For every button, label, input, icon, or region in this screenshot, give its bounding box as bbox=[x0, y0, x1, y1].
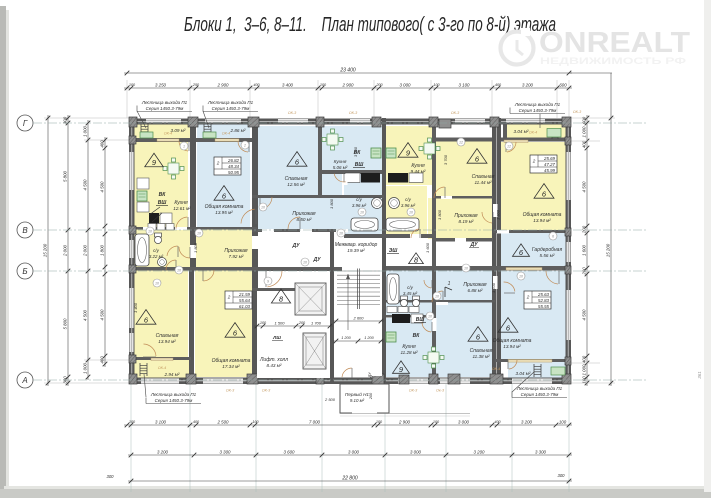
svg-text:3 100: 3 100 bbox=[459, 82, 471, 87]
svg-text:ОК-3: ОК-3 bbox=[349, 111, 358, 115]
svg-text:ДУ: ДУ bbox=[470, 242, 479, 248]
svg-text:ОК-4: ОК-4 bbox=[529, 131, 538, 135]
svg-text:6: 6 bbox=[552, 235, 554, 239]
svg-text:361: 361 bbox=[697, 371, 702, 379]
svg-text:100: 100 bbox=[582, 376, 587, 384]
svg-text:250: 250 bbox=[192, 83, 200, 87]
svg-text:19.39 м²: 19.39 м² bbox=[347, 248, 365, 253]
svg-text:Серия 1450.3-79м: Серия 1450.3-79м bbox=[155, 398, 193, 403]
svg-text:3 000: 3 000 bbox=[458, 419, 470, 424]
svg-text:100: 100 bbox=[252, 420, 259, 424]
svg-text:ВШ: ВШ bbox=[158, 200, 167, 206]
svg-text:400: 400 bbox=[582, 355, 587, 363]
svg-text:Лестница выхода П1: Лестница выхода П1 bbox=[207, 100, 254, 105]
svg-text:300: 300 bbox=[558, 473, 566, 478]
svg-text:8.19 м²: 8.19 м² bbox=[459, 219, 474, 224]
svg-text:ДУ: ДУ bbox=[313, 257, 322, 263]
svg-text:В: В bbox=[22, 226, 28, 235]
svg-text:50.95: 50.95 bbox=[228, 170, 240, 175]
svg-text:6.88 м²: 6.88 м² bbox=[468, 288, 483, 293]
svg-text:10: 10 bbox=[261, 206, 265, 210]
svg-text:2 000: 2 000 bbox=[63, 244, 68, 257]
svg-text:1 000: 1 000 bbox=[582, 364, 587, 376]
svg-text:3 700: 3 700 bbox=[443, 154, 448, 165]
svg-text:3 250: 3 250 bbox=[155, 82, 167, 87]
svg-text:2 500: 2 500 bbox=[324, 397, 336, 402]
svg-text:Лестница выхода П1: Лестница выхода П1 bbox=[516, 386, 563, 391]
svg-text:3 200: 3 200 bbox=[521, 419, 533, 424]
svg-text:Лестница выхода П1: Лестница выхода П1 bbox=[141, 100, 188, 105]
svg-text:Б: Б bbox=[22, 267, 27, 276]
svg-text:с/у: с/у bbox=[407, 285, 414, 290]
svg-text:ВШ: ВШ bbox=[416, 317, 425, 323]
svg-text:400: 400 bbox=[494, 420, 501, 424]
svg-text:10: 10 bbox=[464, 267, 468, 271]
svg-text:400: 400 bbox=[100, 140, 105, 148]
svg-text:1 600: 1 600 bbox=[582, 244, 587, 256]
svg-text:1 200: 1 200 bbox=[364, 336, 374, 340]
svg-text:100: 100 bbox=[129, 83, 136, 87]
svg-text:3 000: 3 000 bbox=[400, 82, 412, 87]
svg-text:ОК-4: ОК-4 bbox=[492, 367, 501, 371]
svg-text:2 900: 2 900 bbox=[342, 82, 355, 87]
svg-text:7 000: 7 000 bbox=[309, 419, 321, 424]
svg-text:12.56 м²: 12.56 м² bbox=[287, 182, 305, 187]
svg-text:ЛШ: ЛШ bbox=[272, 335, 281, 340]
svg-text:Ок-3: Ок-3 bbox=[436, 389, 445, 393]
svg-text:1: 1 bbox=[448, 281, 451, 287]
svg-text:400: 400 bbox=[193, 420, 200, 424]
svg-text:Лестница выхода П1: Лестница выхода П1 bbox=[514, 102, 561, 107]
svg-text:52.83: 52.83 bbox=[538, 298, 550, 303]
svg-text:300: 300 bbox=[107, 474, 115, 479]
svg-text:100: 100 bbox=[559, 419, 567, 424]
svg-text:4 500: 4 500 bbox=[582, 309, 587, 321]
svg-text:с/у: с/у bbox=[356, 197, 363, 202]
svg-text:ОК-3: ОК-3 bbox=[226, 389, 235, 393]
svg-text:3.22 м²: 3.22 м² bbox=[149, 254, 164, 259]
svg-text:3 300: 3 300 bbox=[535, 449, 547, 454]
svg-text:1 600: 1 600 bbox=[425, 242, 430, 253]
svg-text:1 400: 1 400 bbox=[133, 302, 138, 313]
svg-text:9.10 м²: 9.10 м² bbox=[350, 398, 365, 403]
svg-text:23 400: 23 400 bbox=[339, 67, 356, 73]
svg-text:10: 10 bbox=[409, 211, 413, 215]
svg-text:25.63: 25.63 bbox=[537, 292, 550, 297]
svg-text:5 800: 5 800 bbox=[63, 318, 68, 330]
svg-text:ОК-3: ОК-3 bbox=[573, 110, 582, 114]
svg-text:13.94 м²: 13.94 м² bbox=[533, 218, 551, 223]
svg-text:13.94 м²: 13.94 м² bbox=[158, 339, 176, 344]
svg-text:3.45 м²: 3.45 м² bbox=[403, 291, 418, 296]
svg-text:ВК: ВК bbox=[159, 192, 167, 198]
svg-text:2: 2 bbox=[532, 159, 536, 164]
svg-text:10: 10 bbox=[360, 211, 364, 215]
svg-text:с/у: с/у bbox=[153, 248, 160, 253]
svg-text:2: 2 bbox=[216, 161, 220, 166]
svg-text:400: 400 bbox=[100, 356, 105, 364]
svg-text:3 400: 3 400 bbox=[282, 82, 294, 87]
svg-text:21.59: 21.59 bbox=[238, 292, 251, 297]
svg-text:Серия 1450.3-79м: Серия 1450.3-79м bbox=[146, 106, 184, 111]
svg-text:8.50 м²: 8.50 м² bbox=[297, 217, 312, 222]
svg-text:3 100: 3 100 bbox=[155, 419, 167, 424]
svg-text:Г: Г bbox=[23, 119, 28, 128]
svg-text:ОК-3: ОК-3 bbox=[288, 111, 297, 115]
svg-text:ОК-4: ОК-4 bbox=[222, 132, 231, 136]
svg-text:10: 10 bbox=[435, 295, 439, 299]
svg-text:ОК-4: ОК-4 bbox=[158, 366, 167, 370]
svg-text:5.56 м²: 5.56 м² bbox=[540, 253, 555, 258]
svg-text:3.96 м²: 3.96 м² bbox=[352, 203, 367, 208]
svg-text:10: 10 bbox=[519, 275, 523, 279]
svg-text:ОК-3: ОК-3 bbox=[451, 111, 460, 115]
svg-text:400: 400 bbox=[495, 83, 502, 87]
svg-text:3 600: 3 600 bbox=[284, 449, 296, 454]
svg-text:100: 100 bbox=[376, 420, 383, 424]
svg-text:ДУ: ДУ bbox=[292, 243, 301, 249]
svg-text:2: 2 bbox=[526, 295, 530, 300]
svg-text:100: 100 bbox=[129, 420, 136, 424]
svg-text:5.06 м²: 5.06 м² bbox=[333, 165, 348, 170]
svg-text:200: 200 bbox=[369, 392, 373, 400]
svg-text:47.27: 47.27 bbox=[544, 162, 556, 167]
svg-text:11.28 м²: 11.28 м² bbox=[400, 350, 418, 355]
svg-text:НЕДВИЖИМОСТЬ РФ: НЕДВИЖИМОСТЬ РФ bbox=[540, 56, 686, 66]
svg-text:55.64: 55.64 bbox=[239, 298, 251, 303]
svg-text:8.43 м²: 8.43 м² bbox=[267, 363, 282, 368]
svg-text:ОК-4: ОК-4 bbox=[164, 132, 173, 136]
svg-text:3 000: 3 000 bbox=[410, 449, 422, 454]
svg-text:3.04 м²: 3.04 м² bbox=[514, 129, 529, 134]
svg-text:1 000: 1 000 bbox=[582, 126, 587, 138]
svg-text:4 500: 4 500 bbox=[582, 181, 587, 193]
svg-text:61.03: 61.03 bbox=[239, 304, 251, 309]
svg-text:45.99: 45.99 bbox=[544, 168, 556, 173]
svg-text:2 500: 2 500 bbox=[217, 419, 230, 424]
svg-text:3 000: 3 000 bbox=[348, 449, 360, 454]
svg-text:55.55: 55.55 bbox=[538, 304, 550, 309]
svg-text:3 200: 3 200 bbox=[522, 82, 534, 87]
svg-text:5 800: 5 800 bbox=[63, 170, 68, 182]
svg-text:400: 400 bbox=[582, 140, 587, 148]
svg-text:15 200: 15 200 bbox=[606, 243, 611, 257]
svg-text:3 200: 3 200 bbox=[474, 449, 486, 454]
svg-text:ОК-3: ОК-3 bbox=[262, 389, 271, 393]
svg-text:1 700: 1 700 bbox=[491, 282, 496, 293]
svg-text:10: 10 bbox=[303, 261, 307, 265]
svg-text:15 200: 15 200 bbox=[43, 243, 48, 257]
svg-text:ДУ: ДУ bbox=[367, 372, 372, 379]
svg-text:200: 200 bbox=[375, 83, 383, 87]
svg-text:1 200: 1 200 bbox=[341, 336, 351, 340]
svg-text:Серия 1450.3-79м: Серия 1450.3-79м bbox=[521, 392, 559, 397]
svg-text:12: 12 bbox=[507, 145, 511, 149]
svg-text:2 900: 2 900 bbox=[398, 419, 411, 424]
svg-text:7.92 м²: 7.92 м² bbox=[229, 254, 244, 259]
svg-text:10: 10 bbox=[177, 269, 181, 273]
svg-text:11.44 м²: 11.44 м² bbox=[474, 180, 492, 185]
svg-text:13.95 м²: 13.95 м² bbox=[215, 210, 233, 215]
svg-text:3.96 м²: 3.96 м² bbox=[401, 203, 416, 208]
svg-text:11.38 м²: 11.38 м² bbox=[472, 354, 490, 359]
svg-text:600: 600 bbox=[559, 82, 567, 87]
svg-text:4 500: 4 500 bbox=[100, 181, 105, 193]
svg-text:300: 300 bbox=[63, 376, 68, 384]
svg-text:2 600: 2 600 bbox=[352, 315, 364, 320]
svg-text:3 700: 3 700 bbox=[353, 146, 358, 157]
svg-text:3.04 м²: 3.04 м² bbox=[516, 371, 531, 376]
svg-text:17.34 м²: 17.34 м² bbox=[222, 364, 240, 369]
svg-text:100: 100 bbox=[320, 83, 327, 87]
svg-text:Блоки 1, 3–6, 8–11. План т: Блоки 1, 3–6, 8–11. План типового( с 3-г… bbox=[184, 13, 556, 36]
svg-text:26.82: 26.82 bbox=[227, 158, 240, 163]
svg-text:1 700: 1 700 bbox=[311, 320, 322, 325]
svg-text:ONREALT: ONREALT bbox=[539, 27, 690, 59]
svg-text:1 800: 1 800 bbox=[437, 209, 442, 220]
svg-text:ВШ: ВШ bbox=[355, 162, 364, 168]
svg-text:12.61 м²: 12.61 м² bbox=[173, 206, 191, 211]
svg-text:100: 100 bbox=[260, 321, 267, 325]
svg-text:2 000: 2 000 bbox=[83, 244, 88, 257]
svg-text:10: 10 bbox=[148, 230, 152, 234]
svg-text:2: 2 bbox=[243, 144, 246, 148]
svg-text:1 800: 1 800 bbox=[100, 244, 105, 256]
svg-text:10: 10 bbox=[155, 282, 159, 286]
svg-text:12: 12 bbox=[459, 141, 463, 145]
svg-text:200: 200 bbox=[582, 225, 587, 234]
svg-text:Серия 1450.3-79м: Серия 1450.3-79м bbox=[519, 108, 557, 113]
svg-text:ВК: ВК bbox=[413, 333, 421, 339]
svg-text:3 300: 3 300 bbox=[220, 449, 232, 454]
svg-text:13.94 м²: 13.94 м² bbox=[503, 344, 521, 349]
svg-text:Серия 1450.3-79м: Серия 1450.3-79м bbox=[212, 106, 250, 111]
svg-text:1: 1 bbox=[183, 145, 185, 149]
svg-text:1 800: 1 800 bbox=[329, 198, 334, 209]
svg-text:1 800: 1 800 bbox=[193, 242, 198, 253]
svg-text:10: 10 bbox=[197, 232, 201, 236]
svg-text:ЭШ: ЭШ bbox=[389, 248, 398, 254]
svg-text:10: 10 bbox=[428, 315, 432, 319]
svg-text:100: 100 bbox=[433, 420, 440, 424]
svg-text:9: 9 bbox=[267, 280, 269, 284]
svg-text:25.69: 25.69 bbox=[543, 156, 556, 161]
svg-text:48.34: 48.34 bbox=[228, 164, 240, 169]
svg-text:2: 2 bbox=[227, 295, 231, 300]
svg-text:А: А bbox=[21, 376, 27, 385]
svg-text:Первый Н1: Первый Н1 bbox=[345, 391, 369, 397]
svg-text:9.44 м²: 9.44 м² bbox=[411, 169, 426, 174]
svg-text:200: 200 bbox=[298, 321, 306, 325]
svg-text:4 500: 4 500 bbox=[83, 309, 88, 321]
svg-text:10: 10 bbox=[339, 232, 343, 236]
svg-text:Лестница выхода П1: Лестница выхода П1 bbox=[150, 392, 197, 397]
svg-text:1 500: 1 500 bbox=[274, 320, 285, 325]
svg-text:2.86 м²: 2.86 м² bbox=[230, 128, 246, 133]
svg-text:1 000: 1 000 bbox=[83, 362, 88, 374]
svg-text:3 200: 3 200 bbox=[157, 449, 169, 454]
svg-text:2.94 м²: 2.94 м² bbox=[164, 372, 180, 377]
svg-text:3.09 м²: 3.09 м² bbox=[171, 128, 186, 133]
svg-text:100: 100 bbox=[433, 83, 440, 87]
svg-text:1 000: 1 000 bbox=[83, 125, 88, 137]
svg-text:2 900: 2 900 bbox=[217, 82, 230, 87]
svg-text:1 800: 1 800 bbox=[496, 209, 501, 220]
svg-text:400: 400 bbox=[253, 83, 260, 87]
svg-text:ОК-3: ОК-3 bbox=[409, 389, 418, 393]
svg-text:22 800: 22 800 bbox=[341, 475, 358, 481]
svg-text:4 500: 4 500 bbox=[83, 179, 88, 191]
svg-text:4 500: 4 500 bbox=[100, 309, 105, 321]
svg-text:с/у: с/у bbox=[405, 197, 412, 202]
